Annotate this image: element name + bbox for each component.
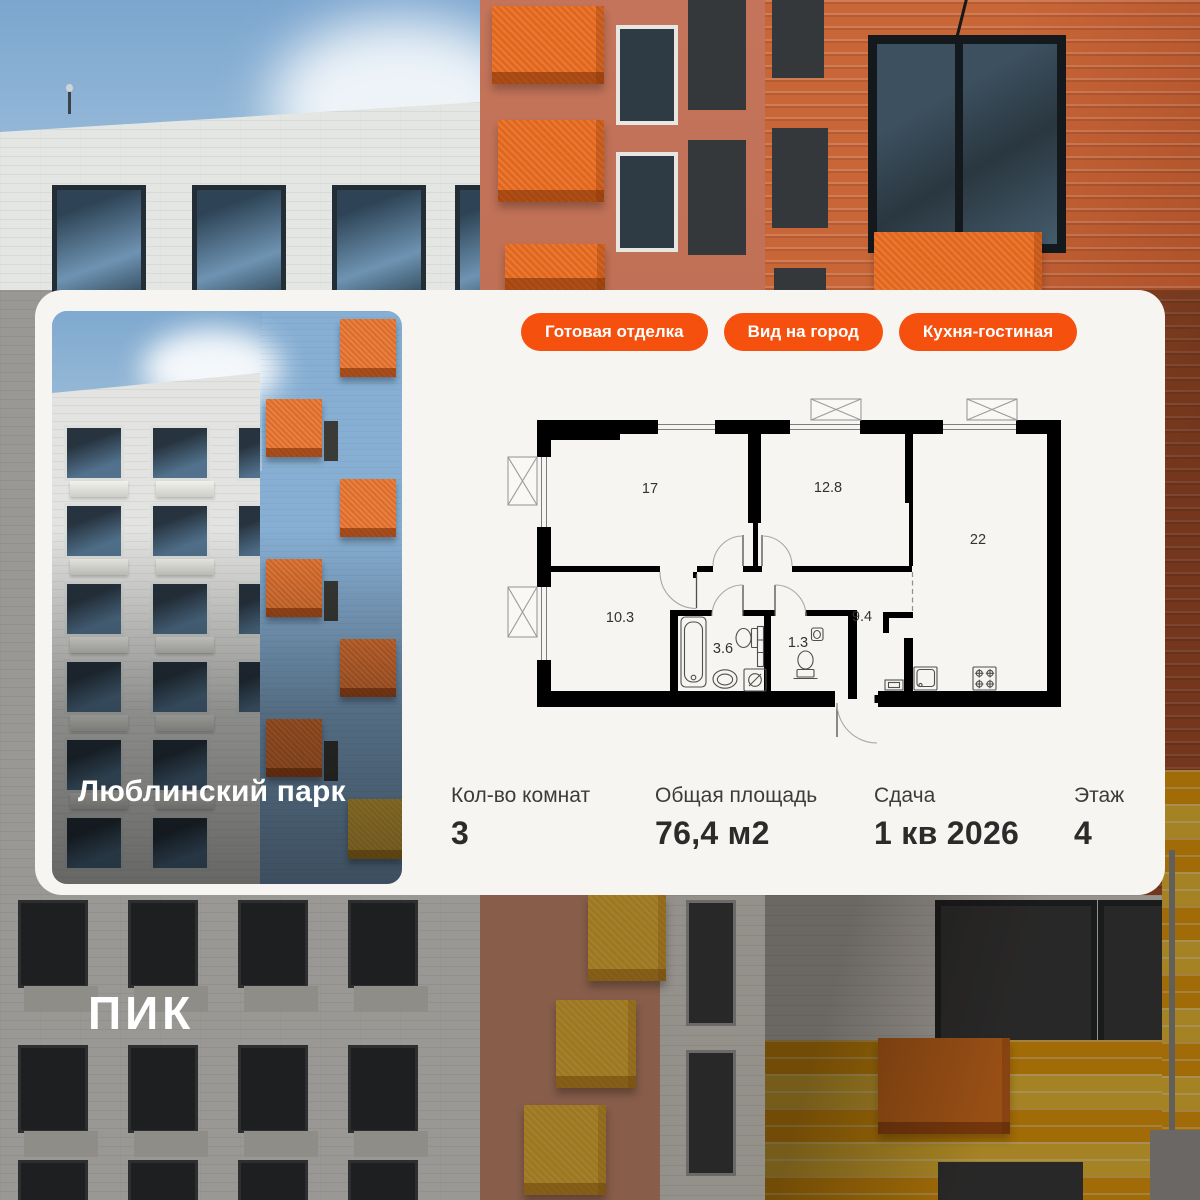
room-area-label: 10.3 (606, 610, 634, 626)
cabinet-icon (885, 680, 903, 690)
spec-value: 3 (451, 815, 590, 852)
badge-kitchen-living: Кухня-гостиная (899, 313, 1077, 351)
badge-row: Готовая отделка Вид на город Кухня-гости… (521, 313, 1077, 351)
floor-plan: 17 12.8 22 10.3 3.6 1.3 9.4 (505, 393, 1075, 768)
badge-finish: Готовая отделка (521, 313, 708, 351)
room-area-label: 17 (642, 481, 658, 497)
room-area-label: 1.3 (788, 635, 808, 651)
room-area-label: 9.4 (852, 609, 872, 625)
spec-label: Кол-во комнат (451, 784, 590, 808)
room-area-label: 3.6 (713, 641, 733, 657)
real-estate-ad-banner: ПИК (0, 0, 1200, 1200)
listing-card[interactable]: Люблинский парк Готовая отделка Вид на г… (35, 290, 1165, 895)
shelf-icon (758, 627, 764, 667)
project-photo: Люблинский парк (52, 311, 402, 884)
spec-value: 1 кв 2026 (874, 815, 1019, 852)
spec-completion: Сдача 1 кв 2026 (874, 784, 1019, 852)
washing-machine-icon (744, 669, 766, 691)
toilet-icon (736, 629, 758, 648)
lamp-post (68, 90, 71, 114)
kitchen-sink-icon (914, 667, 937, 690)
badge-city-view: Вид на город (724, 313, 883, 351)
room-area-label: 12.8 (814, 480, 842, 496)
spec-value: 4 (1074, 815, 1124, 852)
large-window (868, 35, 1066, 253)
spec-label: Общая площадь (655, 784, 817, 808)
spec-floor: Этаж 4 (1074, 784, 1124, 852)
spec-value: 76,4 м2 (655, 815, 817, 852)
wc-toilet-icon (794, 651, 818, 679)
sink-icon (713, 670, 737, 688)
stove-icon (973, 667, 996, 690)
spec-label: Сдача (874, 784, 1019, 808)
project-name: Люблинский парк (78, 775, 346, 809)
room-area-label: 22 (970, 532, 986, 548)
spec-area: Общая площадь 76,4 м2 (655, 784, 817, 852)
spec-label: Этаж (1074, 784, 1124, 808)
wc-sink-icon (812, 628, 824, 641)
spec-rooms: Кол-во комнат 3 (451, 784, 590, 852)
pik-logo: ПИК (88, 986, 194, 1040)
